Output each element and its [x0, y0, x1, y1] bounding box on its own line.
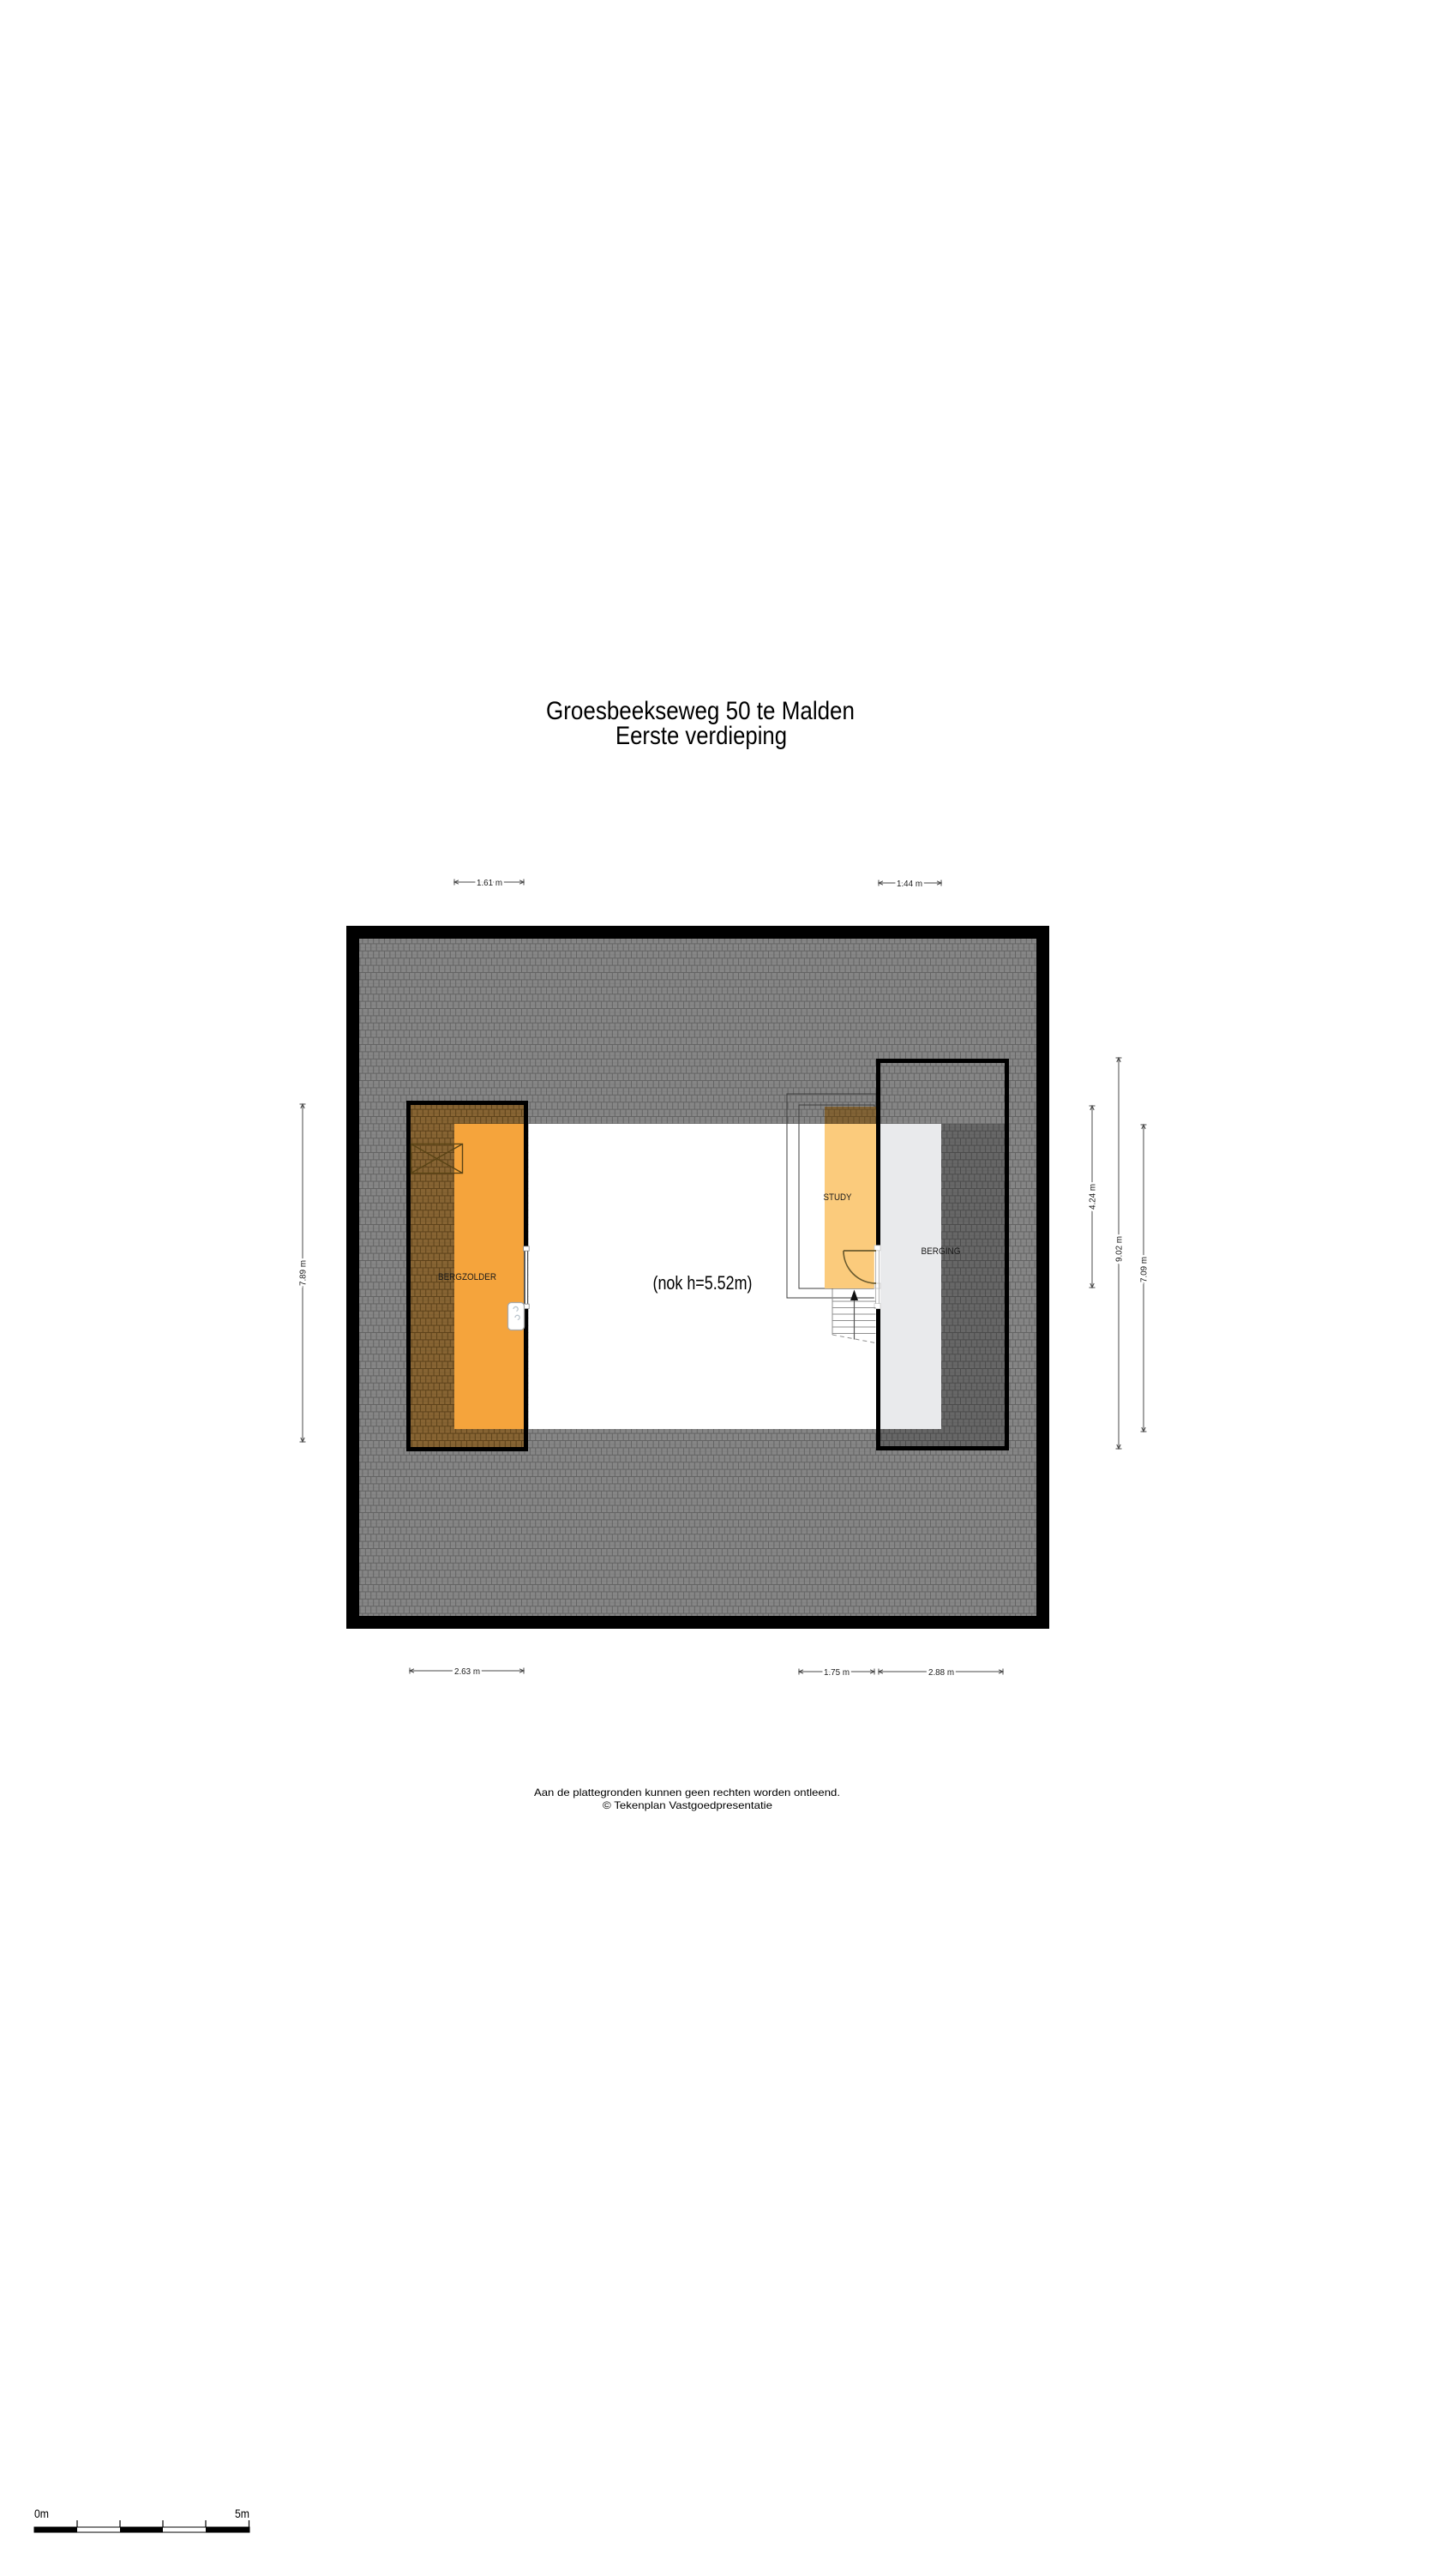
svg-text:1.61 m: 1.61 m	[477, 879, 502, 888]
svg-text:2.88 m: 2.88 m	[928, 1668, 954, 1678]
svg-text:2.63 m: 2.63 m	[454, 1667, 480, 1677]
svg-text:BERGZOLDER: BERGZOLDER	[438, 1272, 496, 1282]
svg-text:5m: 5m	[235, 2507, 249, 2520]
svg-text:1.75 m: 1.75 m	[824, 1668, 850, 1678]
svg-text:4.24 m: 4.24 m	[1089, 1184, 1098, 1210]
svg-text:Eerste verdieping: Eerste verdieping	[615, 722, 787, 750]
svg-text:0m: 0m	[34, 2507, 49, 2520]
svg-text:9.02 m: 9.02 m	[1115, 1236, 1125, 1262]
svg-text:© Tekenplan Vastgoedpresentati: © Tekenplan Vastgoedpresentatie	[603, 1799, 772, 1811]
svg-text:7.09 m: 7.09 m	[1140, 1257, 1150, 1282]
svg-text:(nok h=5.52m): (nok h=5.52m)	[653, 1272, 753, 1294]
svg-text:BERGING: BERGING	[922, 1246, 961, 1257]
svg-text:7.89 m: 7.89 m	[299, 1260, 309, 1286]
svg-text:STUDY: STUDY	[824, 1192, 853, 1203]
svg-text:Aan de plattegronden kunnen ge: Aan de plattegronden kunnen geen rechten…	[534, 1786, 840, 1798]
svg-text:1.44 m: 1.44 m	[897, 880, 922, 889]
